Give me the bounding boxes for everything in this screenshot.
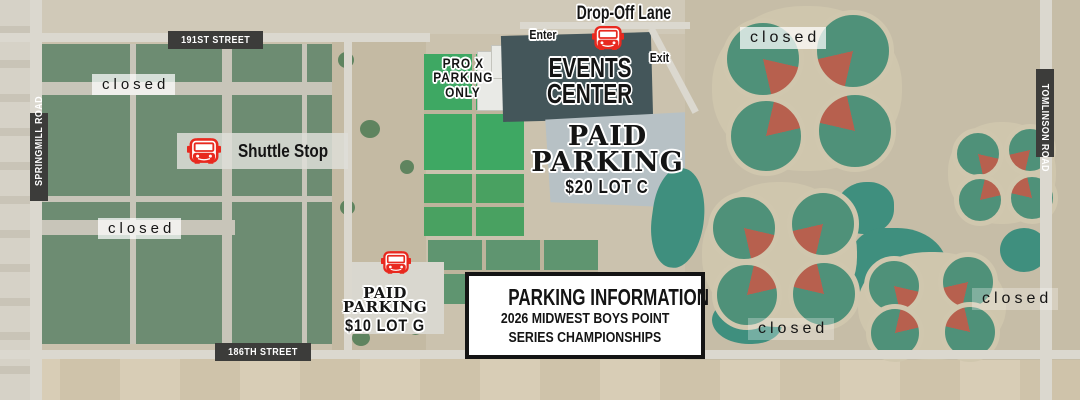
closed-label: closed [748,318,834,340]
shuttle-stop-label: Shuttle Stop [230,141,336,162]
tree [400,160,414,174]
road-tomlinson [1040,0,1052,400]
closed-label: closed [92,74,175,95]
closed-label: closed [972,288,1058,310]
lot-c-label: PAID PARKING $20 LOT C [520,124,695,198]
drop-off-lane-label: Drop-Off Lane [560,3,688,25]
pro-x-parking-label: PRO X PARKING ONLY [418,56,508,99]
shuttle-stop-badge: Shuttle Stop [177,133,348,169]
ballfield [952,128,1004,180]
farmland-bottom [0,358,1080,400]
residential-strip [0,0,30,400]
closed-label: closed [740,27,826,49]
field-path [222,44,232,344]
bus-icon [187,138,221,164]
ballfield [708,192,780,264]
turf-fields-mid [424,174,524,236]
field-path [302,44,307,344]
info-box-title: PARKING INFORMATION [473,284,697,310]
ballfield [812,10,894,92]
field-path [40,82,332,95]
ballfield-cluster [702,182,857,327]
street-label-191st: 191ST STREET [168,31,263,49]
parking-information-box: PARKING INFORMATION 2026 MIDWEST BOYS PO… [465,272,705,359]
bus-icon [381,251,411,274]
ballfield [726,96,806,176]
street-label-186th: 186TH STREET [215,343,311,361]
street-label-springmill: SPRINGMILL ROAD [30,113,48,201]
events-center-label: EVENTS CENTER [530,55,650,107]
ballfield [787,188,859,260]
bus-icon [592,26,624,50]
tree [360,120,380,138]
ballfield [954,174,1006,226]
exit-label: Exit [648,51,671,65]
street-label-tomlinson: TOMLINSON ROAD [1036,69,1054,157]
lot-g-label: PAID PARKING $10 LOT G [330,286,440,336]
info-box-subtitle: 2026 MIDWEST BOYS POINT SERIES CHAMPIONS… [473,310,697,348]
field-path [40,196,332,202]
soccer-fields-west [40,44,332,344]
enter-label: Enter [527,28,559,42]
parking-map: 191ST STREET 186TH STREET SPRINGMILL ROA… [0,0,1080,400]
closed-label: closed [98,218,181,239]
ballfield [814,90,896,172]
